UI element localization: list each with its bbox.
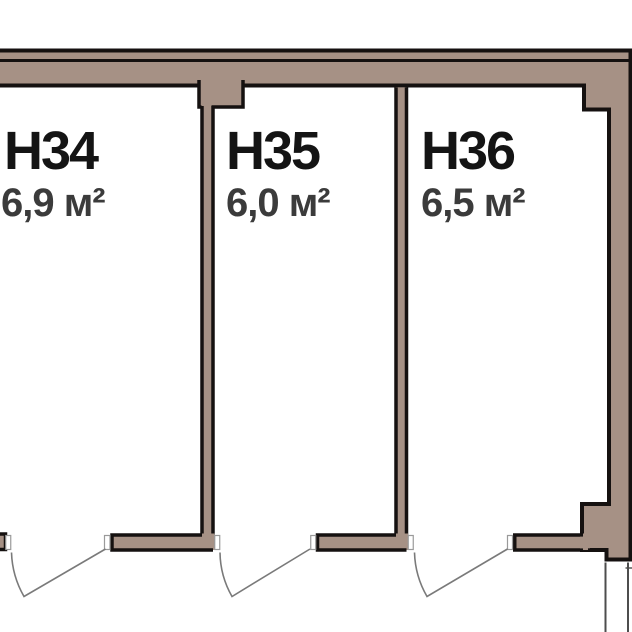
wall-opening-right bbox=[606, 563, 632, 632]
room-label-h35: Н35 bbox=[226, 124, 319, 178]
door-jamb-h36-left bbox=[408, 536, 413, 550]
door-jamb-h34-left bbox=[6, 536, 11, 550]
door-swing-h35 bbox=[220, 549, 310, 597]
room-area-h34: 6,9 м² bbox=[1, 183, 105, 223]
room-label-h36: Н36 bbox=[421, 124, 514, 178]
door-jamb-h35-right bbox=[311, 536, 316, 550]
room-area-h36: 6,5 м² bbox=[421, 183, 525, 223]
bottom-wall-left-piece bbox=[0, 534, 6, 550]
floor-plan-canvas bbox=[0, 0, 632, 632]
room-label-h34: Н34 bbox=[4, 124, 97, 178]
door-swing-h36 bbox=[415, 549, 508, 597]
door-jamb-h35-left bbox=[215, 536, 220, 550]
floor-plan: Н34 6,9 м² Н35 6,0 м² Н36 6,5 м² bbox=[0, 0, 632, 632]
door-jamb-h34-right bbox=[105, 536, 111, 550]
room-area-h35: 6,0 м² bbox=[226, 183, 330, 223]
door-swing-h34 bbox=[12, 549, 106, 597]
wall-merge-patch bbox=[580, 537, 590, 549]
door-jamb-h36-right bbox=[508, 536, 513, 550]
